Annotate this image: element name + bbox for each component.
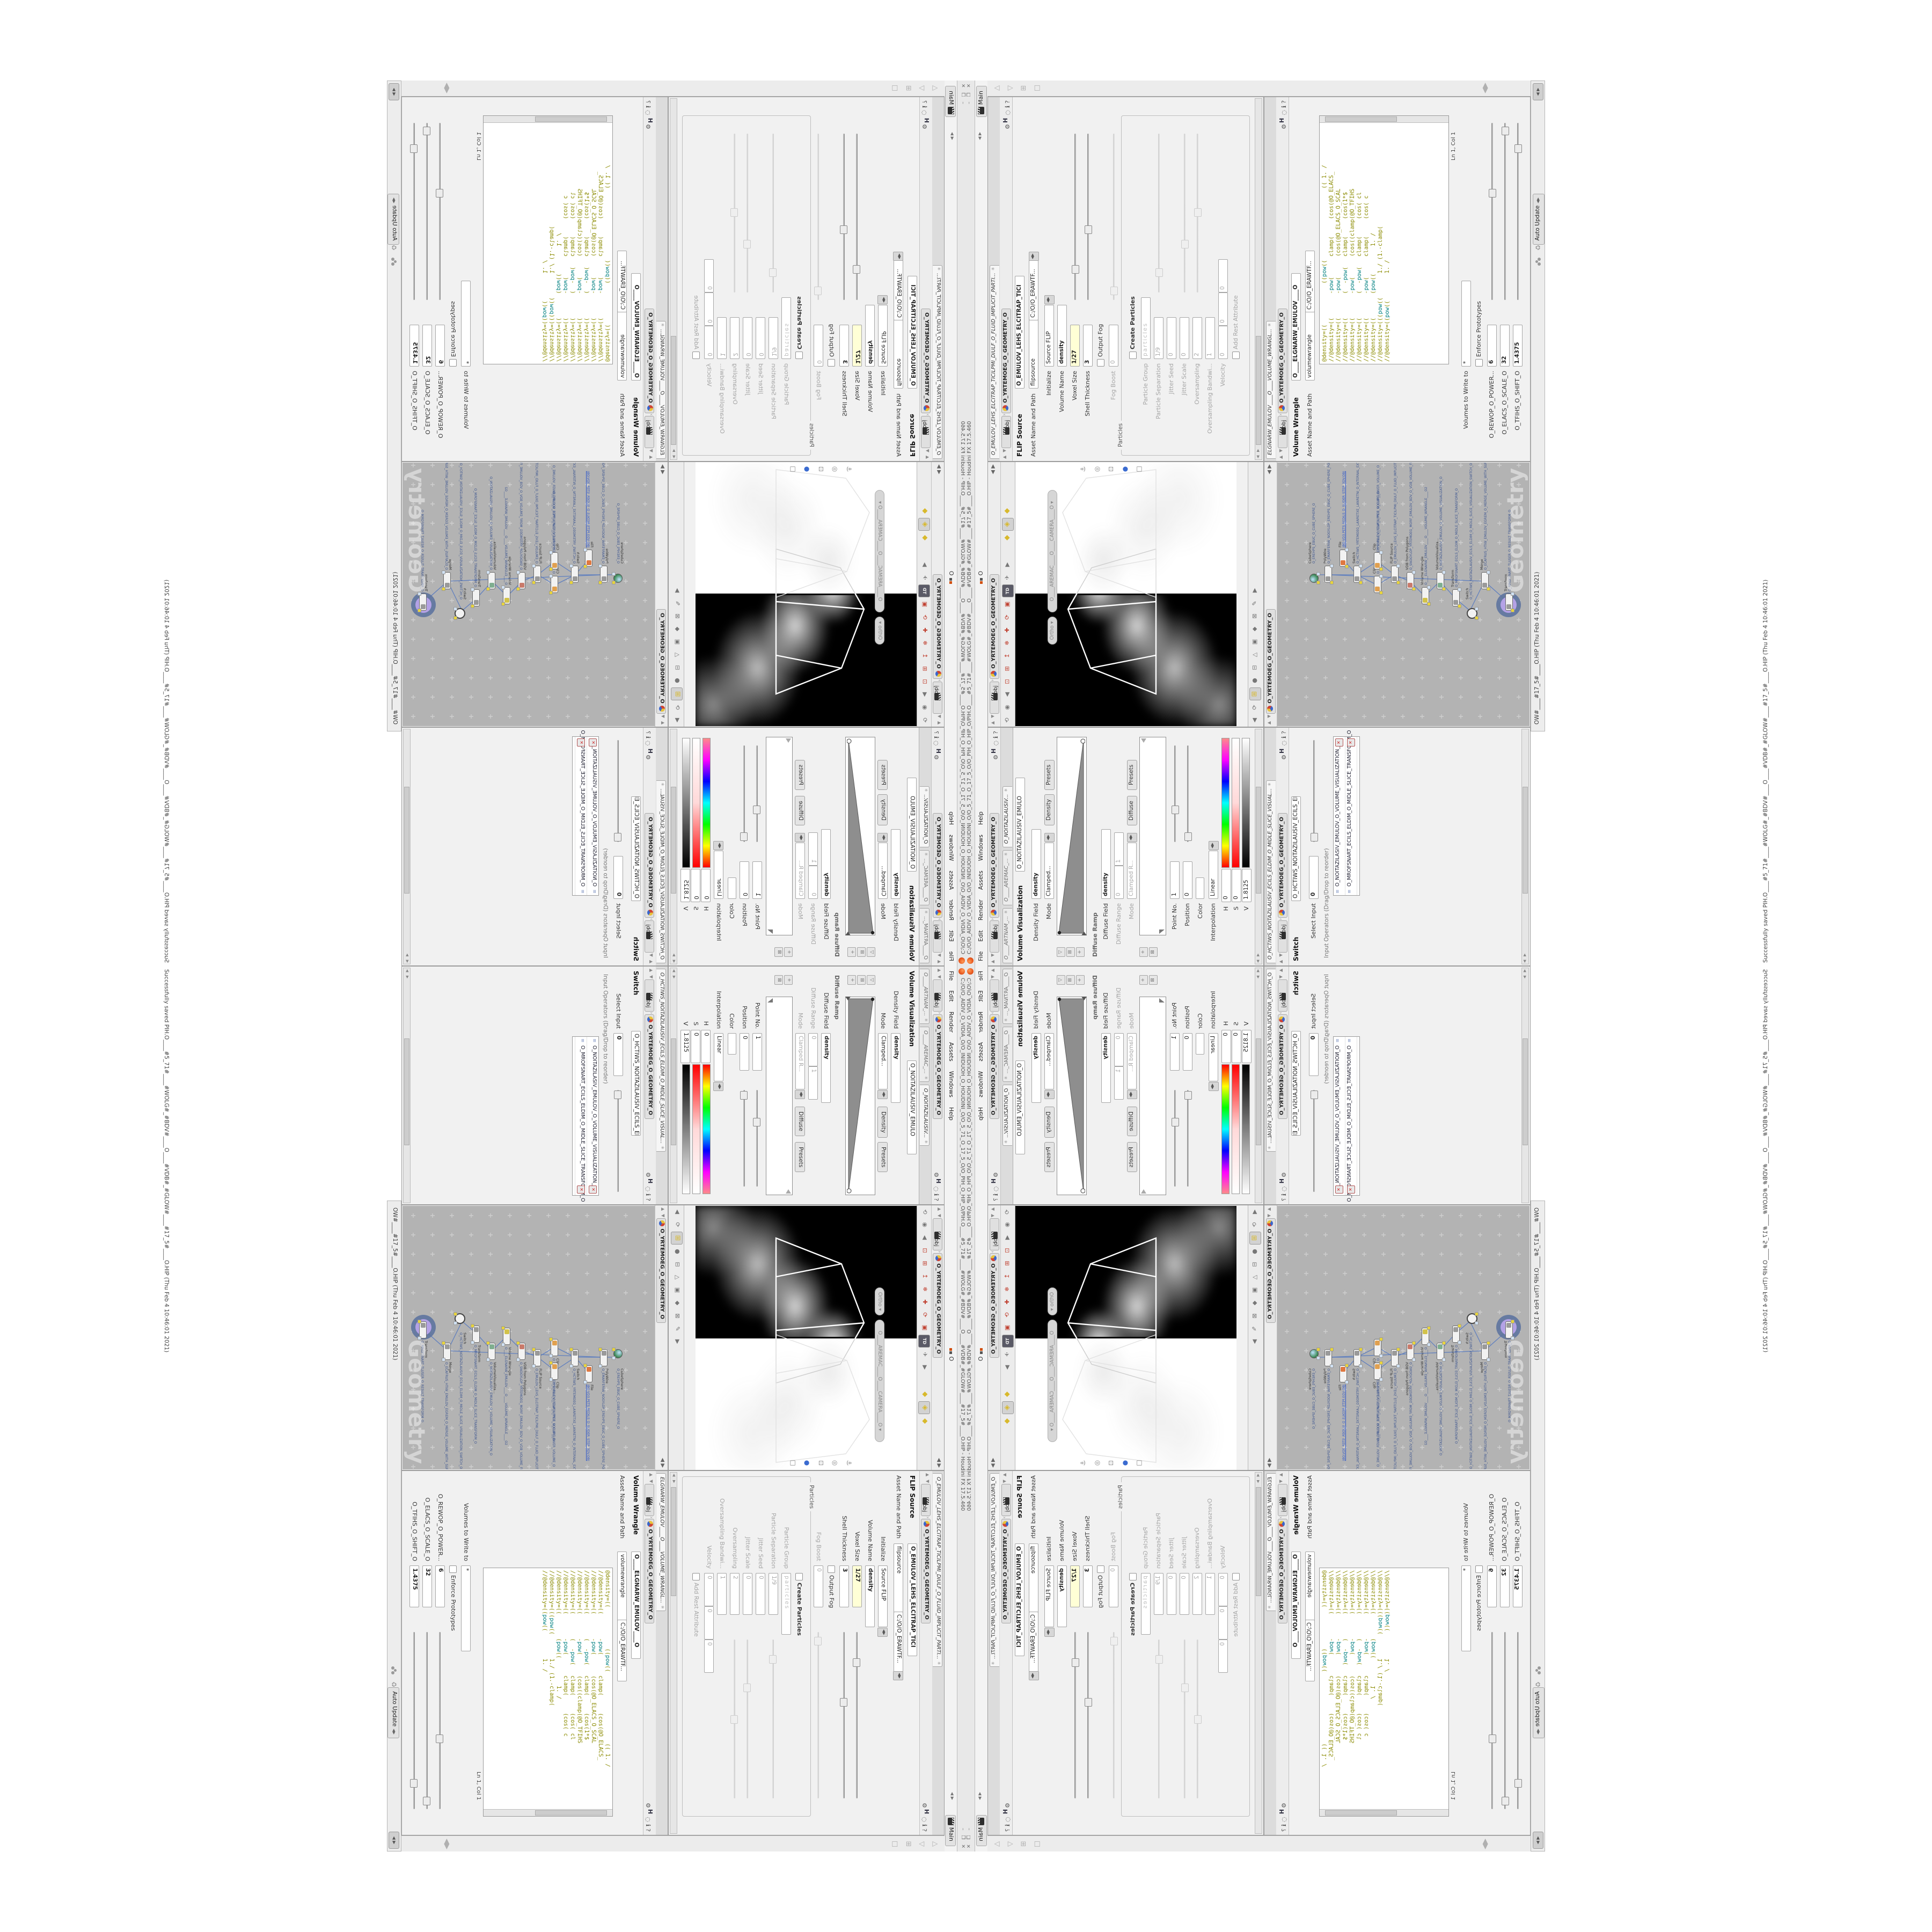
- nav-fwd-icon[interactable]: ▼: [990, 954, 995, 957]
- param-field[interactable]: Clamped R...: [795, 1033, 805, 1089]
- param-slider[interactable]: [426, 1632, 428, 1809]
- viewport-display-icon[interactable]: ◀: [1249, 1206, 1260, 1218]
- viewport-side-icon[interactable]: □: [788, 1458, 799, 1468]
- list-item[interactable]: ≡O_MROFSNART_ECILS_ELDIM_O_MIDLE_SLICE_T…: [575, 1037, 587, 1195]
- node-breadcrumb-chip[interactable]: O_YRTEMOEG_O_GEOMETRY_O: [656, 609, 666, 714]
- asset-path-field[interactable]: C:/O/O_ERAWTF...: [617, 1620, 627, 1681]
- nav-back-icon[interactable]: ▲: [937, 721, 942, 724]
- hscript-icon[interactable]: H: [935, 749, 942, 753]
- delete-item-icon[interactable]: ✕: [577, 738, 585, 747]
- node-flag-icon[interactable]: [1316, 572, 1320, 576]
- viewport-canvas[interactable]: Ortho ▾ O____AREMAC____O____CAMERA____O …: [1015, 1206, 1236, 1470]
- obj-context-chip[interactable]: obj: [921, 416, 931, 448]
- code-vscrollbar[interactable]: [484, 1809, 612, 1816]
- help-icon[interactable]: ?: [1280, 1828, 1287, 1832]
- node-breadcrumb-chip[interactable]: O_YRTEMOEG_O_GEOMETRY_O: [656, 1218, 666, 1323]
- pane-tab-1[interactable]: O____AREMAC_...✳: [920, 1027, 930, 1082]
- param-slider[interactable]: [439, 123, 441, 300]
- viewport-tool-icon[interactable]: ▣: [919, 1322, 930, 1334]
- shading-mode-icon[interactable]: ◆: [919, 1388, 930, 1400]
- menu-windows[interactable]: Windows: [948, 830, 957, 866]
- obj-context-chip[interactable]: obj: [990, 682, 999, 713]
- pane-down-icon[interactable]: ▽: [918, 1836, 926, 1851]
- node-flag-icon[interactable]: [1475, 1312, 1479, 1316]
- param-field[interactable]: Source FLIP: [878, 1565, 888, 1627]
- combo-spinner[interactable]: ◀▶: [713, 1082, 723, 1091]
- help-icon[interactable]: ?: [992, 731, 999, 734]
- viewport-display-icon[interactable]: ▶: [1249, 584, 1260, 596]
- ramp-add-icon[interactable]: +: [1139, 975, 1148, 985]
- param-field[interactable]: 1: [752, 861, 762, 899]
- obj-context-chip[interactable]: obj: [645, 416, 654, 448]
- param-slider[interactable]: [1491, 1632, 1493, 1809]
- node-flag-icon[interactable]: [1379, 1378, 1383, 1381]
- menu-help[interactable]: Help: [975, 1102, 984, 1125]
- viewport-display-icon[interactable]: ⟳: [1249, 701, 1260, 713]
- gear-icon[interactable]: ⚙: [645, 1803, 652, 1808]
- ramp-del-icon[interactable]: ⊠: [774, 975, 783, 985]
- viewport-tool-icon[interactable]: ↥: [919, 650, 930, 662]
- viewport-tool-icon[interactable]: ▣: [919, 598, 930, 610]
- node-flag-icon[interactable]: [1511, 609, 1514, 612]
- viewport-side-icon[interactable]: ⊡: [816, 464, 826, 474]
- button-diffuse[interactable]: Diffuse: [795, 796, 805, 825]
- network-node[interactable]: [571, 1349, 579, 1366]
- obj-context-chip[interactable]: obj: [933, 1218, 942, 1250]
- viewport-side-icon[interactable]: ●: [1119, 1458, 1130, 1468]
- param-field[interactable]: 1: [717, 1573, 727, 1615]
- node-name-field[interactable]: O____ELGNARW_EMULOV____O: [1291, 273, 1301, 380]
- window-titlebar[interactable]: C:/O/O_AIDIV_O_VIDIA_O/O_INIDUOH_O_HOUDI…: [966, 80, 975, 966]
- help-icon[interactable]: ?: [1004, 100, 1011, 104]
- param-field[interactable]: 3: [1083, 325, 1093, 367]
- node-flag-icon[interactable]: [501, 1326, 505, 1330]
- node-flag-icon[interactable]: [1345, 1380, 1349, 1384]
- viewport-tool-icon[interactable]: ◉: [919, 701, 930, 713]
- param-field[interactable]: 0: [1114, 1033, 1124, 1066]
- checkbox[interactable]: [692, 1573, 700, 1580]
- horizontal-scrollbar[interactable]: ◀▶: [403, 968, 411, 1203]
- viewport-side-icon[interactable]: ◎: [830, 464, 840, 474]
- menu-file[interactable]: File: [948, 966, 957, 985]
- desktop-selector[interactable]: Main: [976, 86, 987, 117]
- viewport-display-icon[interactable]: ⟳: [1249, 1219, 1260, 1231]
- node-flag-icon[interactable]: [549, 1378, 553, 1381]
- hsv-field[interactable]: 0: [1221, 1030, 1231, 1063]
- ramp-add-icon[interactable]: +: [847, 975, 856, 985]
- node-flag-icon[interactable]: [1359, 581, 1363, 584]
- gear-icon[interactable]: ⚙: [992, 1172, 999, 1177]
- obj-context-chip[interactable]: obj: [1278, 979, 1287, 1011]
- button-diffuse[interactable]: Diffuse: [1127, 796, 1137, 825]
- node-breadcrumb-chip[interactable]: O_YRTEMOEG_O_GEOMETRY_O: [1278, 1519, 1287, 1623]
- viewport-side-icon[interactable]: ◎: [830, 1458, 840, 1468]
- viewport-tool-icon[interactable]: ▣: [1002, 598, 1013, 610]
- network-node[interactable]: [1374, 576, 1381, 593]
- node-breadcrumb-chip[interactable]: O_YRTEMOEG_O_GEOMETRY_O: [933, 1253, 942, 1358]
- viewport-tool-icon[interactable]: ✚: [919, 624, 930, 636]
- desktop-icon[interactable]: O: [977, 1348, 984, 1361]
- obj-context-chip[interactable]: obj: [645, 1484, 654, 1516]
- param-field[interactable]: 1: [1114, 1066, 1124, 1100]
- shading-mode-icon[interactable]: ◆: [1002, 505, 1013, 517]
- viewport-display-icon[interactable]: ◀: [1249, 714, 1260, 726]
- viewport-side-icon[interactable]: ⚓: [844, 464, 854, 474]
- viewport-tool-icon[interactable]: ⟳: [1002, 1309, 1013, 1321]
- viewport-display-icon[interactable]: ▣: [1249, 636, 1260, 648]
- hsv-field[interactable]: 1.8125: [1242, 1030, 1252, 1063]
- node-name-field[interactable]: O____ELGNARW_EMULOV____O: [631, 273, 641, 380]
- node-flag-icon[interactable]: [1316, 1356, 1320, 1360]
- button-diffuse[interactable]: Diffuse: [1127, 1107, 1137, 1136]
- param-field[interactable]: 0: [743, 317, 752, 359]
- checkbox[interactable]: [1232, 1573, 1240, 1580]
- pane-down-icon[interactable]: ▽: [1006, 80, 1014, 96]
- nav-back-icon[interactable]: ▲: [1278, 456, 1283, 459]
- param-slider[interactable]: [1504, 123, 1506, 300]
- param-field[interactable]: 0: [613, 1033, 623, 1076]
- list-item[interactable]: ≡O_MROFSNART_ECILS_ELDIM_O_MIDLE_SLICE_T…: [1345, 737, 1357, 895]
- asset-path-field[interactable]: C:/O/O_ERAWTF...: [1029, 259, 1038, 320]
- obj-context-chip[interactable]: obj: [1278, 416, 1287, 448]
- status-spinner[interactable]: ◀ ▶: [1533, 1832, 1543, 1849]
- info-icon[interactable]: ℹ: [1004, 1824, 1011, 1826]
- hsv-bar-H[interactable]: [702, 1064, 711, 1194]
- param-slider[interactable]: [1158, 134, 1160, 292]
- horizontal-scrollbar[interactable]: ◀▶: [1255, 729, 1262, 964]
- network-node[interactable]: [585, 1365, 592, 1382]
- node-flag-icon[interactable]: [1330, 1364, 1334, 1368]
- network-node[interactable]: [1505, 594, 1513, 611]
- param-field[interactable]: 0: [1183, 1033, 1192, 1071]
- asset-name-field[interactable]: flipsource: [894, 1543, 903, 1613]
- magnifier-icon[interactable]: ◌: [1280, 110, 1287, 115]
- node-flag-icon[interactable]: [1379, 567, 1383, 571]
- viewport-display-icon[interactable]: ⊠: [672, 1310, 683, 1322]
- network-node[interactable]: [533, 566, 541, 583]
- node-flag-icon[interactable]: [1359, 1364, 1363, 1368]
- magnifier-icon[interactable]: ◌: [1280, 1817, 1287, 1822]
- hscript-icon[interactable]: H: [1002, 1809, 1009, 1814]
- menu-edit[interactable]: Edit: [948, 985, 957, 1006]
- obj-context-chip[interactable]: obj: [921, 1484, 931, 1516]
- viewport-side-icon[interactable]: ◎: [1092, 1458, 1102, 1468]
- node-flag-icon[interactable]: [532, 581, 536, 584]
- param-field[interactable]: Clamped R...: [1127, 843, 1137, 899]
- param-slider[interactable]: [1184, 134, 1185, 292]
- node-flag-icon[interactable]: [516, 1358, 520, 1362]
- param-field[interactable]: density: [891, 829, 901, 899]
- param-field[interactable]: 3: [839, 1565, 849, 1607]
- node-flag-icon[interactable]: [453, 607, 457, 611]
- node-name-field[interactable]: O_NOITAZILAUSIV_EMULO: [907, 1060, 917, 1154]
- param-slider[interactable]: [617, 740, 619, 842]
- network-node[interactable]: [1374, 552, 1381, 569]
- network-node[interactable]: [1374, 1339, 1381, 1356]
- info-icon[interactable]: ℹ: [1280, 736, 1287, 738]
- pane-tab-2[interactable]: O_NOITAZILAUSIV...✳: [1002, 1085, 1012, 1146]
- nav-fwd-icon[interactable]: ▼: [649, 975, 654, 978]
- param-slider[interactable]: [817, 1632, 819, 1798]
- hsv-field[interactable]: 1.8125: [680, 1030, 690, 1063]
- network-node[interactable]: [1353, 566, 1361, 583]
- viewport-side-icon[interactable]: ●: [802, 464, 813, 474]
- ortho-pill[interactable]: Ortho ▾: [875, 1287, 884, 1315]
- viewport-tool-icon[interactable]: ▣: [1002, 1322, 1013, 1334]
- param-slider[interactable]: [1113, 134, 1115, 300]
- nav-back-icon[interactable]: ▲: [1002, 1473, 1007, 1476]
- list-item[interactable]: ≡O_MROFSNART_ECILS_ELDIM_O_MIDLE_SLICE_T…: [1345, 1037, 1357, 1195]
- nav-back-icon[interactable]: ▲: [937, 969, 942, 972]
- hsv-bar-H[interactable]: [1221, 1064, 1230, 1194]
- param-field[interactable]: Clamped R...: [1127, 1033, 1137, 1089]
- button-presets[interactable]: Presets: [1044, 760, 1055, 790]
- viewport-display-icon[interactable]: ✎: [672, 597, 683, 609]
- node-flag-icon[interactable]: [1379, 574, 1383, 578]
- node-flag-icon[interactable]: [1511, 1320, 1514, 1323]
- help-icon[interactable]: ?: [933, 731, 940, 734]
- help-icon[interactable]: ?: [933, 1198, 940, 1201]
- info-icon[interactable]: ℹ: [992, 1194, 999, 1196]
- hscript-icon[interactable]: H: [990, 749, 997, 753]
- path-spinner[interactable]: ◀▶: [1029, 252, 1039, 261]
- combo-spinner[interactable]: ◀▶: [877, 295, 888, 304]
- auto-update-selector[interactable]: Auto Update◀▶: [387, 194, 399, 245]
- param-field[interactable]: density: [821, 829, 831, 899]
- magnifier-icon[interactable]: ◌: [1280, 741, 1287, 746]
- node-breadcrumb-chip[interactable]: O_YRTEMOEG_O_GEOMETRY_O: [1278, 813, 1287, 918]
- param-field[interactable]: Clamped...: [1044, 843, 1054, 899]
- param-field[interactable]: Clamped...: [1044, 1033, 1054, 1089]
- button-presets[interactable]: Presets: [795, 760, 805, 790]
- viewport-side-icon[interactable]: ⚓: [1078, 1458, 1088, 1468]
- gear-icon[interactable]: ⚙: [1004, 1803, 1011, 1808]
- node-flag-icon[interactable]: [598, 581, 602, 584]
- horizontal-scrollbar[interactable]: ◀▶: [1521, 968, 1529, 1203]
- checkbox[interactable]: [449, 1565, 457, 1573]
- node-name-field[interactable]: O____ELGNARW_EMULOV____O: [631, 1552, 641, 1659]
- hsv-bar-S[interactable]: [692, 1064, 700, 1194]
- viewport-display-icon[interactable]: ⟳: [672, 701, 683, 713]
- viewport-tool-icon[interactable]: ✈: [1002, 572, 1013, 583]
- menu-help[interactable]: Help: [975, 807, 984, 830]
- viewport-tool-icon[interactable]: ◉: [1002, 701, 1013, 713]
- help-icon[interactable]: ?: [645, 100, 652, 104]
- node-flag-icon[interactable]: [1316, 581, 1320, 584]
- density-ramp[interactable]: [1057, 997, 1087, 1195]
- pane-tab-1[interactable]: O____AREMAC_...✳: [1002, 850, 1012, 905]
- param-field[interactable]: Linear: [1209, 851, 1218, 899]
- asset-name-field[interactable]: volumewrangle: [617, 311, 627, 380]
- param-field[interactable]: 0: [1218, 259, 1228, 292]
- param-field[interactable]: 0: [1218, 1640, 1228, 1673]
- hscript-icon[interactable]: H: [923, 1809, 930, 1814]
- shading-mode-icon[interactable]: ◆: [919, 1415, 930, 1427]
- viewport-tool-icon[interactable]: ⊡: [919, 676, 930, 687]
- ramp-del-icon[interactable]: ⊠: [774, 947, 783, 957]
- hsv-bar-S[interactable]: [692, 738, 700, 868]
- viewport-display-icon[interactable]: △: [1249, 649, 1260, 661]
- viewport-side-icon[interactable]: ⚓: [844, 1458, 854, 1468]
- network-node[interactable]: [1467, 608, 1477, 619]
- info-icon[interactable]: ℹ: [933, 1194, 940, 1196]
- window-buttons[interactable]: – ❐ ✕: [960, 1828, 965, 1850]
- pane-tab-2[interactable]: O_NOITAZILAUSIV...✳: [1002, 786, 1012, 847]
- vex-code-editor[interactable]: @density=(( ((pow(( (( 1. / //@density=(…: [1319, 115, 1449, 364]
- param-slider[interactable]: [1187, 1090, 1189, 1187]
- param-field[interactable]: 6: [1487, 325, 1497, 367]
- node-flag-icon[interactable]: [471, 1324, 474, 1328]
- param-slider[interactable]: [1087, 1632, 1089, 1798]
- viewport-side-icon[interactable]: □: [788, 464, 799, 474]
- viewport-display-icon[interactable]: ⊞: [671, 687, 683, 700]
- houdini-paw-icon[interactable]: [1535, 258, 1542, 266]
- node-name-field[interactable]: O_EMULOV_LEHS_ELCITRAP_TICI: [908, 276, 917, 389]
- button-presets[interactable]: Presets: [877, 1142, 888, 1172]
- nav-fwd-icon[interactable]: ▼: [661, 715, 665, 718]
- network-node[interactable]: [1340, 1365, 1347, 1382]
- nav-back-icon[interactable]: ▲: [990, 969, 995, 972]
- nav-fwd-icon[interactable]: ▼: [990, 715, 995, 718]
- frame-icon[interactable]: □: [1033, 1836, 1041, 1851]
- param-slider[interactable]: [747, 134, 748, 292]
- button-presets[interactable]: Presets: [1127, 1142, 1137, 1172]
- horizontal-scrollbar[interactable]: ◀▶: [1521, 729, 1529, 964]
- viewport-side-icon[interactable]: ●: [802, 1458, 813, 1468]
- button-density[interactable]: Density: [1044, 1107, 1055, 1138]
- network-canvas[interactable]: TransformO_MROFSNART_TLUSER_O_RESULT_TRA…: [1277, 463, 1529, 726]
- checkbox[interactable]: [1129, 1573, 1137, 1580]
- viewport-tool-icon[interactable]: ⊞: [919, 1257, 930, 1269]
- pane-tab-1[interactable]: O____AREMAC_...✳: [920, 850, 930, 905]
- network-node[interactable]: [551, 576, 558, 593]
- nav-fwd-icon[interactable]: ▼: [925, 449, 930, 452]
- node-flag-icon[interactable]: [471, 1341, 474, 1344]
- param-slider[interactable]: [1491, 123, 1493, 300]
- node-flag-icon[interactable]: [1412, 587, 1416, 591]
- hsv-bar-H[interactable]: [702, 738, 711, 868]
- ramp-add-icon[interactable]: +: [1076, 947, 1085, 957]
- combo-spinner[interactable]: ◀▶: [1044, 295, 1055, 304]
- window-titlebar[interactable]: C:/O/O_AIDIV_O_VIDIA_O/O_INIDUOH_O_HOUDI…: [966, 966, 975, 1851]
- node-flag-icon[interactable]: [1330, 581, 1334, 584]
- nav-fwd-icon[interactable]: ▼: [661, 1214, 665, 1217]
- viewport-display-icon[interactable]: ●: [1249, 1246, 1260, 1257]
- crumb-spinner[interactable]: ◀ ▶: [660, 464, 665, 474]
- nav-back-icon[interactable]: ▲: [925, 1473, 930, 1476]
- asset-name-field[interactable]: flipsource: [1029, 319, 1038, 389]
- checkbox[interactable]: [449, 359, 457, 367]
- network-node[interactable]: [488, 1343, 495, 1360]
- diffuse-ramp[interactable]: [1139, 737, 1166, 935]
- code-vscrollbar[interactable]: [1320, 116, 1448, 123]
- node-flag-icon[interactable]: [516, 570, 520, 574]
- node-breadcrumb-chip[interactable]: O_YRTEMOEG_O_GEOMETRY_O: [1266, 609, 1276, 714]
- viewport-tool-icon[interactable]: ↥: [1002, 1270, 1013, 1282]
- delete-item-icon[interactable]: ✕: [1347, 1185, 1355, 1194]
- viewport-tool-icon[interactable]: ❄: [1002, 1283, 1013, 1295]
- nav-back-icon[interactable]: ▲: [1278, 969, 1283, 972]
- node-name-field[interactable]: O_HCTIWS_NOITAZILAUSIV_ECILS_EL: [631, 1031, 641, 1136]
- network-node[interactable]: [488, 572, 495, 589]
- path-spinner[interactable]: ◀▶: [893, 252, 903, 261]
- node-flag-icon[interactable]: [1316, 1348, 1320, 1351]
- node-flag-icon[interactable]: [471, 604, 474, 608]
- asset-path-field[interactable]: C:/O/O_ERAWTF...: [617, 251, 627, 312]
- drag-handle-icon[interactable]: ≡: [1347, 1038, 1352, 1044]
- param-field[interactable]: particles: [1141, 1573, 1151, 1635]
- frame-icon[interactable]: □: [1033, 80, 1041, 96]
- ramp-del-icon[interactable]: ⊠: [1149, 947, 1158, 957]
- param-field[interactable]: *: [1461, 1565, 1471, 1651]
- ramp-flip-icon[interactable]: ▽: [867, 947, 875, 957]
- viewport-tool-icon[interactable]: ↥: [919, 1270, 930, 1282]
- viewport-tool-icon[interactable]: ❄: [919, 637, 930, 649]
- info-icon[interactable]: ℹ: [645, 1824, 652, 1826]
- viewport-side-icon[interactable]: □: [1133, 1458, 1144, 1468]
- param-field[interactable]: Source FLIP: [1044, 1565, 1054, 1627]
- node-flag-icon[interactable]: [1442, 1341, 1446, 1345]
- param-slider[interactable]: [1074, 1632, 1076, 1798]
- node-breadcrumb-chip[interactable]: O_YRTEMOEG_O_GEOMETRY_O: [645, 309, 654, 413]
- drag-handle-icon[interactable]: ≡: [580, 888, 585, 894]
- nav-back-icon[interactable]: ▲: [1278, 1473, 1283, 1476]
- param-field[interactable]: Clamped...: [878, 1033, 888, 1089]
- gear-icon[interactable]: ⚙: [1004, 124, 1011, 129]
- magnifier-icon[interactable]: ◌: [1004, 1817, 1011, 1822]
- viewport-display-icon[interactable]: ▶: [672, 1336, 683, 1348]
- viewport-display-icon[interactable]: ●: [672, 1246, 683, 1257]
- node-breadcrumb-chip[interactable]: O_YRTEMOEG_O_GEOMETRY_O: [990, 813, 999, 918]
- viewport-tool-icon[interactable]: ◀: [1002, 1232, 1013, 1243]
- node-flag-icon[interactable]: [612, 581, 616, 584]
- node-breadcrumb-chip[interactable]: O_YRTEMOEG_O_GEOMETRY_O: [990, 574, 999, 679]
- color-swatch[interactable]: [728, 1033, 736, 1055]
- viewport-tool-icon[interactable]: TD: [918, 1335, 930, 1348]
- nav-back-icon[interactable]: ▲: [1002, 456, 1007, 459]
- shading-mode-icon[interactable]: ◆: [1002, 1388, 1013, 1400]
- param-field[interactable]: 1: [717, 317, 727, 359]
- param-slider[interactable]: [1517, 1632, 1519, 1809]
- node-flag-icon[interactable]: [1345, 548, 1349, 552]
- gear-icon[interactable]: ⚙: [921, 1803, 928, 1808]
- path-spinner[interactable]: ◀▶: [1029, 1671, 1039, 1680]
- gear-icon[interactable]: ⚙: [1280, 1172, 1287, 1177]
- network-node[interactable]: [455, 608, 465, 619]
- network-node[interactable]: [585, 550, 592, 567]
- node-flag-icon[interactable]: [1487, 1341, 1490, 1345]
- crumb-spinner[interactable]: ◀ ▶: [660, 1458, 665, 1468]
- param-slider[interactable]: [843, 1632, 845, 1798]
- pane-tab-2[interactable]: O_NOITAZILAUSIV...✳: [920, 786, 930, 847]
- viewport-tool-icon[interactable]: ⊞: [1002, 1257, 1013, 1269]
- param-field[interactable]: Clamped R...: [795, 843, 805, 899]
- button-presets[interactable]: Presets: [1044, 1142, 1055, 1172]
- param-slider[interactable]: [1313, 1090, 1315, 1192]
- node-flag-icon[interactable]: [1412, 1341, 1416, 1345]
- node-flag-icon[interactable]: [1330, 1348, 1334, 1351]
- network-node[interactable]: [503, 587, 510, 604]
- viewport-tool-icon[interactable]: ❄: [919, 1283, 930, 1295]
- network-node[interactable]: [1407, 572, 1414, 589]
- param-field[interactable]: 0: [704, 1606, 714, 1640]
- node-flag-icon[interactable]: [486, 1358, 490, 1362]
- node-flag-icon[interactable]: [442, 1358, 445, 1362]
- node-flag-icon[interactable]: [549, 1337, 553, 1341]
- nav-back-icon[interactable]: ▲: [649, 1473, 654, 1476]
- param-field[interactable]: Linear: [714, 1033, 723, 1081]
- info-icon[interactable]: ℹ: [921, 106, 928, 108]
